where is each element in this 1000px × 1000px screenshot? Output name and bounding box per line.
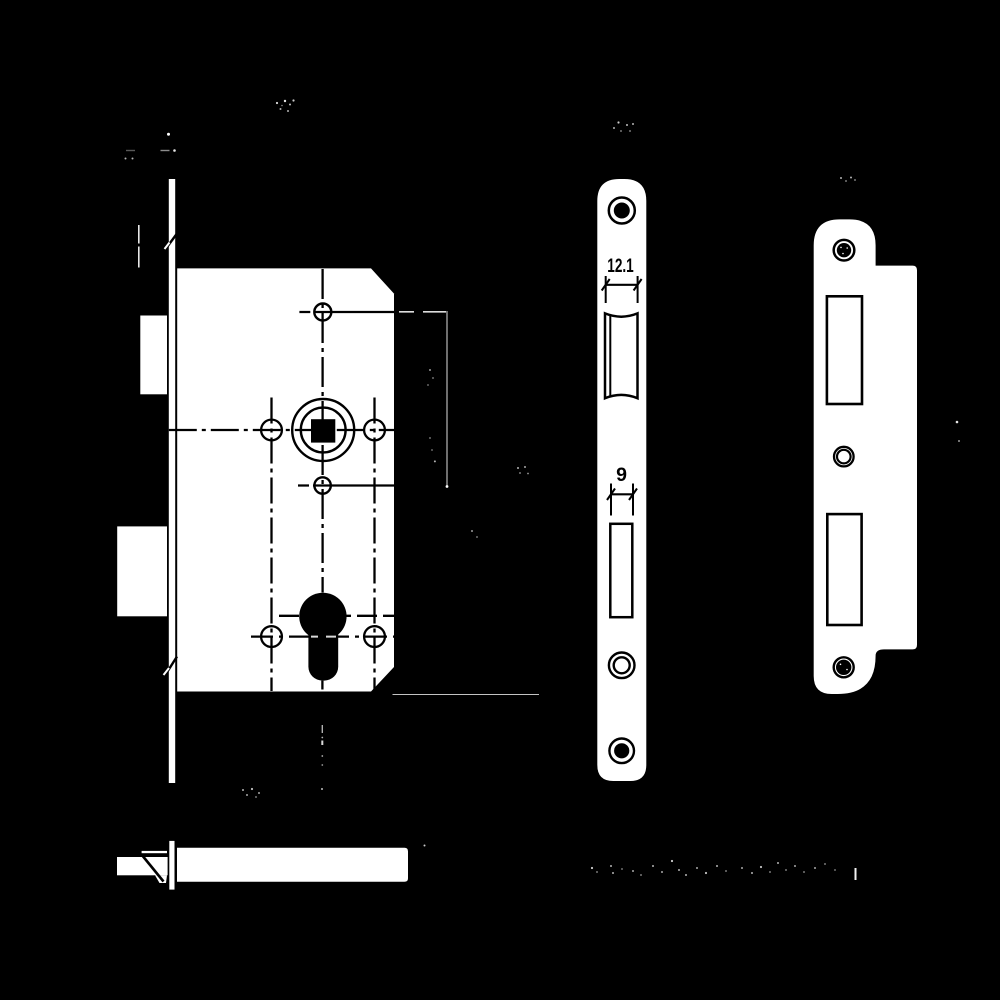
svg-text:9: 9 — [616, 464, 627, 486]
svg-text:12.1: 12.1 — [607, 255, 634, 277]
